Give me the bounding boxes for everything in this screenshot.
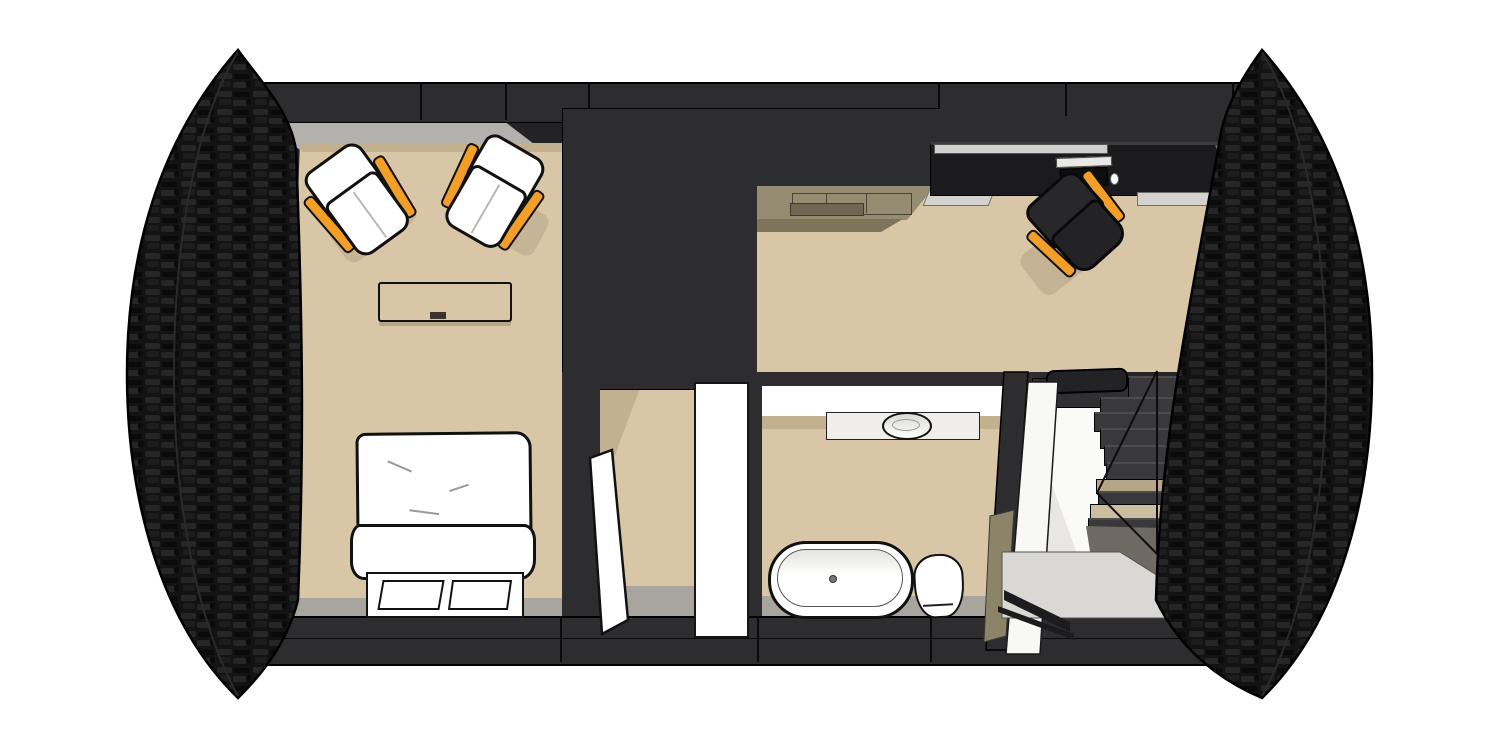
- top-section-wall-right: [930, 112, 1260, 145]
- bathtub-inner: [777, 549, 903, 607]
- stair-hall-shading: [1030, 424, 1078, 556]
- wall-seam: [560, 616, 562, 662]
- desk-edge-strip: [934, 144, 1108, 154]
- toilet-base: [923, 603, 953, 615]
- bathtub-drain: [829, 575, 837, 583]
- wall-seam: [1065, 82, 1067, 116]
- mouse: [1110, 173, 1119, 185]
- desk-right-corner-ledge: [1215, 145, 1247, 162]
- wall-seam: [757, 616, 759, 662]
- under-desk-ledge: [1137, 192, 1219, 206]
- hallway-door-panel: [694, 382, 749, 638]
- bench-notch: [430, 312, 446, 319]
- right-stone-gable-ridge: [1262, 52, 1326, 696]
- stair-hall-partition: [1006, 382, 1058, 654]
- stair-shelf-object: [1046, 368, 1129, 395]
- kitchen-sink-recess: [790, 203, 864, 216]
- wall-seam: [1205, 616, 1207, 662]
- bed-pillow-2: [448, 580, 512, 610]
- vanity-round-basin: [882, 412, 932, 440]
- bed-foot-bench: [366, 572, 524, 618]
- kitchen-counter-divider: [866, 193, 867, 213]
- wall-seam: [245, 638, 1260, 639]
- chair-crease: [353, 192, 387, 238]
- left-stone-gable-ridge: [174, 52, 238, 696]
- wall-seam: [505, 82, 507, 120]
- toilet: [912, 553, 965, 620]
- floorplan-render: [0, 0, 1500, 750]
- bed-pillow-1: [377, 580, 444, 610]
- kitchen-counter-shadow: [757, 219, 903, 232]
- stair-tread-10: [1088, 518, 1162, 531]
- wall-seam: [1232, 82, 1234, 144]
- wall-seam: [930, 616, 932, 662]
- chair-crease: [471, 184, 501, 233]
- bottom-section-wall: [245, 616, 1260, 666]
- left-stone-gable-wall: [127, 50, 302, 698]
- bathtub: [768, 541, 914, 619]
- wall-seam: [420, 82, 422, 120]
